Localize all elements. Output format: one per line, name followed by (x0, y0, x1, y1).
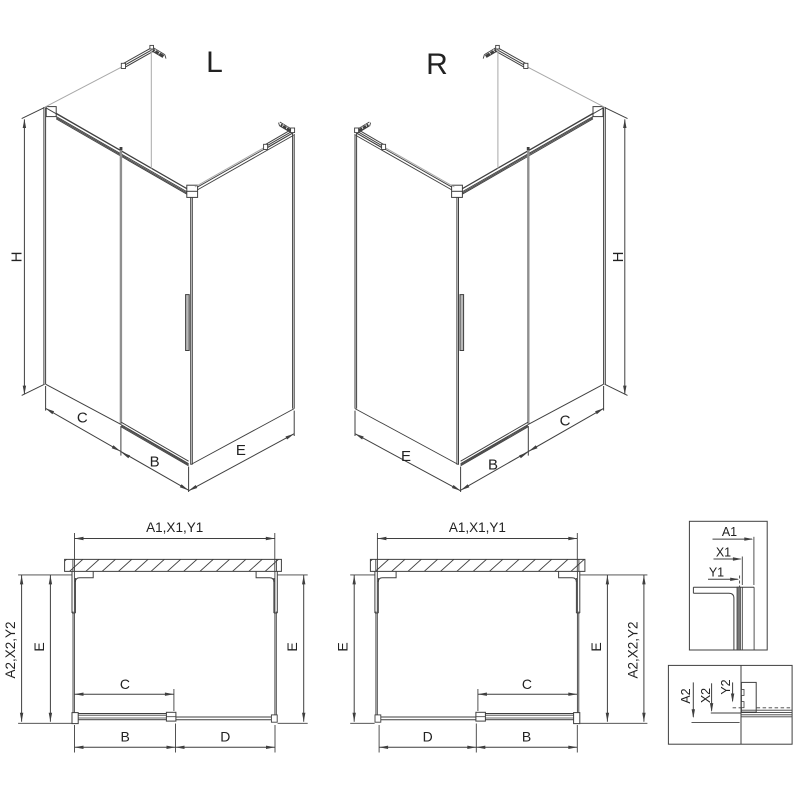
svg-text:H: H (610, 252, 627, 263)
svg-text:A2,X2,Y2: A2,X2,Y2 (3, 621, 18, 678)
svg-text:C: C (120, 676, 130, 692)
svg-text:B: B (522, 729, 531, 745)
svg-text:Y2: Y2 (719, 679, 733, 694)
svg-text:H: H (9, 252, 26, 263)
svg-text:R: R (426, 48, 448, 81)
svg-text:A1,X1,Y1: A1,X1,Y1 (449, 520, 506, 535)
svg-text:E: E (401, 448, 411, 465)
svg-text:A2,X2,Y2: A2,X2,Y2 (625, 621, 640, 678)
svg-text:E: E (31, 642, 47, 651)
svg-text:Y1: Y1 (709, 566, 724, 580)
svg-text:D: D (423, 729, 433, 745)
svg-text:C: C (560, 413, 571, 430)
svg-text:D: D (220, 729, 230, 745)
svg-text:C: C (522, 676, 532, 692)
svg-text:A1: A1 (722, 525, 737, 539)
svg-text:B: B (150, 454, 160, 471)
svg-text:A1,X1,Y1: A1,X1,Y1 (146, 520, 203, 535)
svg-text:B: B (121, 729, 130, 745)
svg-text:A2: A2 (679, 688, 693, 703)
svg-text:B: B (488, 457, 498, 474)
svg-text:X1: X1 (716, 546, 731, 560)
svg-text:X2: X2 (699, 688, 713, 703)
svg-text:E: E (335, 642, 351, 651)
svg-text:E: E (284, 642, 300, 651)
svg-text:E: E (236, 442, 246, 459)
svg-text:L: L (206, 46, 223, 79)
svg-text:C: C (77, 410, 88, 427)
svg-text:E: E (588, 642, 604, 651)
